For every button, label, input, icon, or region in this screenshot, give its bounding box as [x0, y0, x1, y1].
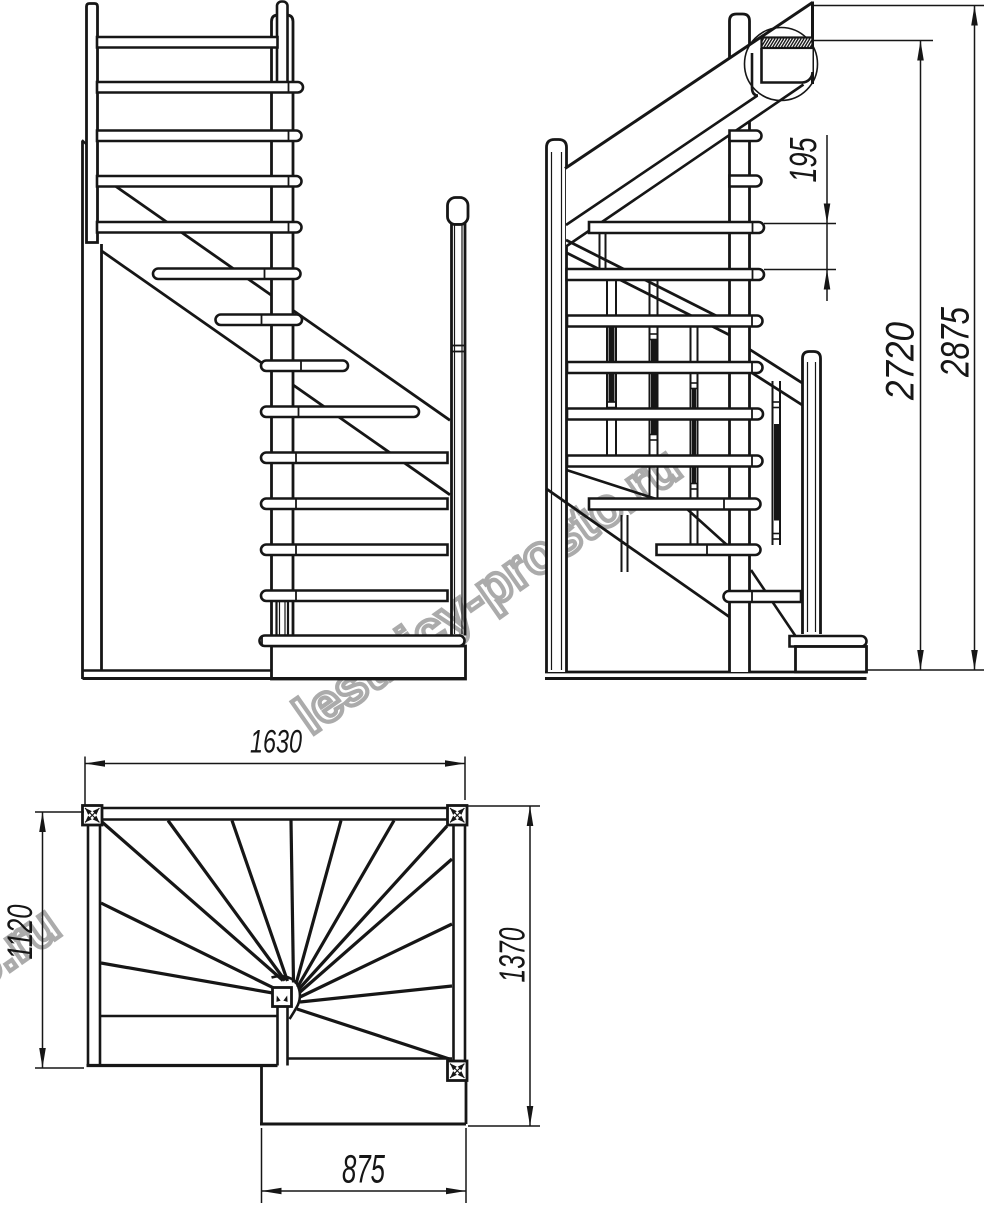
svg-text:1630: 1630 — [250, 724, 302, 760]
svg-text:2720: 2720 — [879, 322, 923, 401]
svg-text:1120: 1120 — [1, 904, 40, 959]
svg-text:195: 195 — [783, 137, 825, 183]
svg-text:2875: 2875 — [934, 306, 978, 377]
svg-text:875: 875 — [342, 1148, 385, 1192]
svg-text:1370: 1370 — [492, 928, 533, 983]
